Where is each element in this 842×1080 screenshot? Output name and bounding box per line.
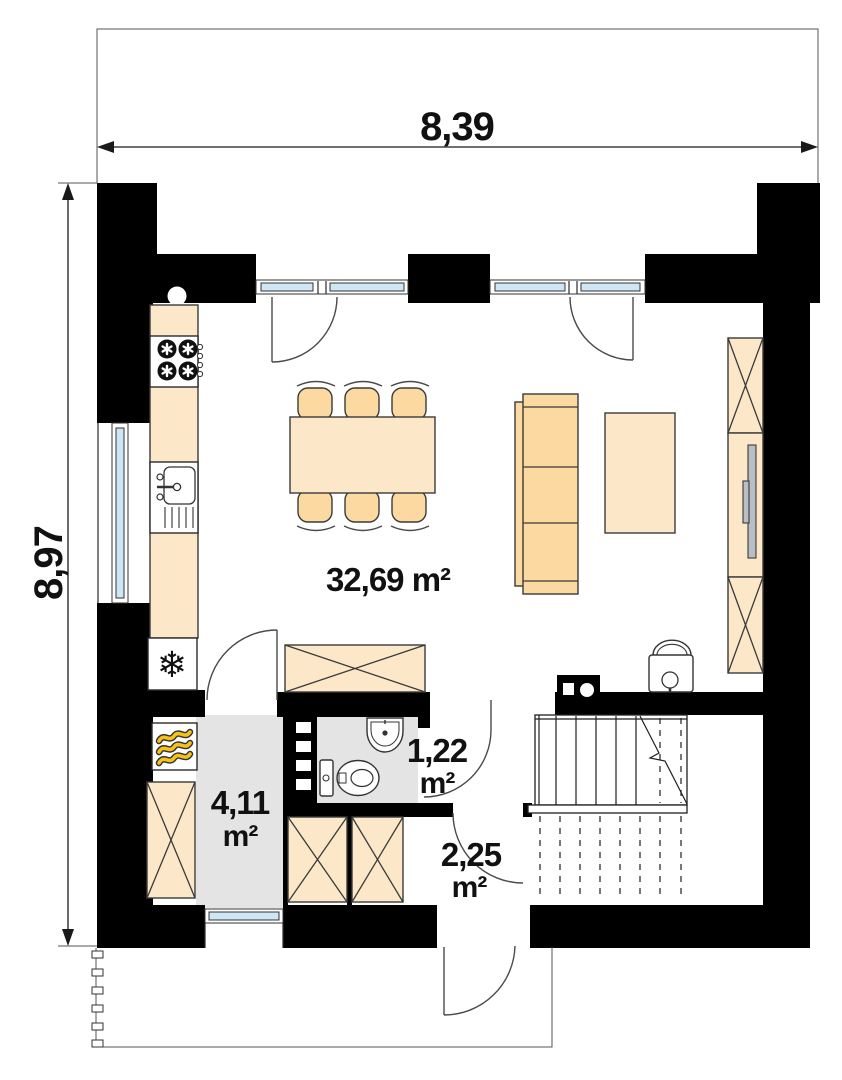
freezer-icon: ❄ <box>148 638 197 690</box>
window-top-left <box>256 280 408 294</box>
coffee-table <box>605 413 675 533</box>
porch-outline <box>92 947 552 1047</box>
room-label-wc-value: 1,22 <box>407 732 468 769</box>
dimension-height-label: 8,97 <box>27 526 71 600</box>
stairs <box>528 715 687 898</box>
tv-cabinet <box>728 338 763 673</box>
wardrobe-hall-west <box>147 782 195 898</box>
floor-plan: 8,39 8,97 <box>0 0 842 1080</box>
washbasin-icon <box>367 718 403 752</box>
dining-table <box>290 417 435 493</box>
dimension-top: 8,39 <box>97 29 818 183</box>
dimension-left: 8,97 <box>27 183 97 946</box>
hall-door-swing <box>207 630 277 700</box>
room-label-vestibule-unit: m² <box>452 871 488 904</box>
dining-set <box>290 382 435 531</box>
room-label-wc-unit: m² <box>420 767 456 800</box>
stove-icon <box>150 336 203 387</box>
balcony-door-swing-left <box>272 297 337 362</box>
boiler-icon <box>649 640 693 692</box>
sink-icon <box>150 462 198 533</box>
window-south <box>205 909 283 948</box>
flue-icon <box>168 287 187 306</box>
room-label-hall-value: 4,11 <box>211 784 270 821</box>
wardrobe-hall-2 <box>352 817 403 902</box>
wardrobe-hall-1 <box>288 817 347 902</box>
heater-icon <box>152 723 197 770</box>
handrail <box>528 805 687 813</box>
room-label-hall-unit: m² <box>223 820 259 853</box>
toilet-icon <box>320 760 379 796</box>
dimension-width-label: 8,39 <box>420 105 494 149</box>
window-top-right <box>490 280 645 294</box>
balcony-door-swing-right <box>570 297 633 360</box>
window-west <box>98 423 128 603</box>
room-label-living: 32,69 m² <box>326 561 451 598</box>
entrance-door-swing <box>444 946 515 1015</box>
sofa <box>515 394 578 594</box>
room-label-vestibule-value: 2,25 <box>441 836 502 873</box>
wardrobe-wc-top <box>285 645 425 692</box>
svg-text:❄: ❄ <box>157 644 187 685</box>
chimney-icon <box>557 675 600 715</box>
